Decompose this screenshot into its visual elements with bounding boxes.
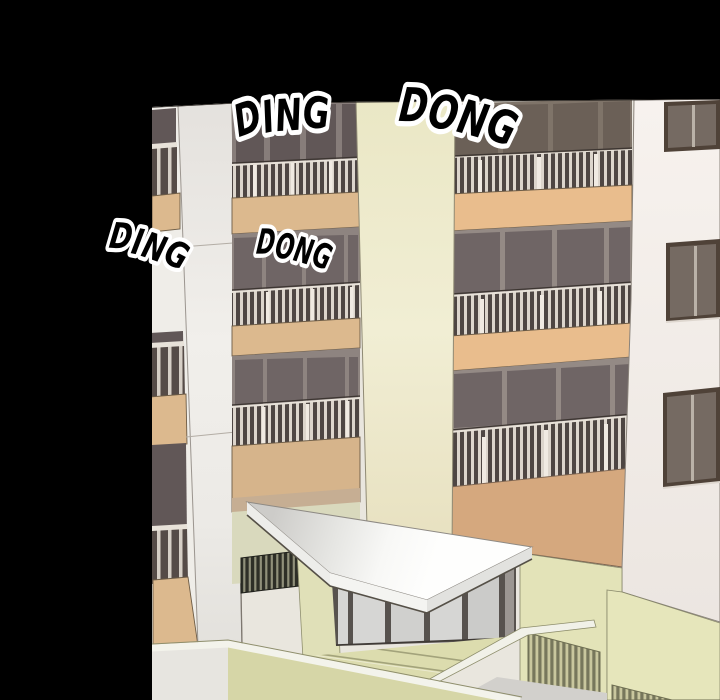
balcony-railing (232, 160, 360, 198)
right-facade (450, 98, 632, 567)
comic-panel: DING DONG DING DONG (0, 0, 720, 700)
slatted-fence (241, 551, 299, 593)
white-side-wall (622, 98, 720, 622)
balcony-spandrel (152, 193, 180, 232)
courtyard-scene (150, 96, 720, 700)
side-window (664, 100, 720, 152)
balcony-spandrel (232, 192, 360, 234)
panel-artwork: DING DONG DING DONG (0, 0, 720, 700)
balcony-spandrel (150, 394, 187, 447)
balcony-railing (152, 144, 177, 199)
corner-column (356, 99, 455, 566)
balcony-railing (151, 526, 188, 584)
side-window (663, 387, 720, 488)
side-window (666, 239, 720, 322)
balcony-railing (150, 343, 185, 401)
parapet-face (152, 646, 228, 700)
